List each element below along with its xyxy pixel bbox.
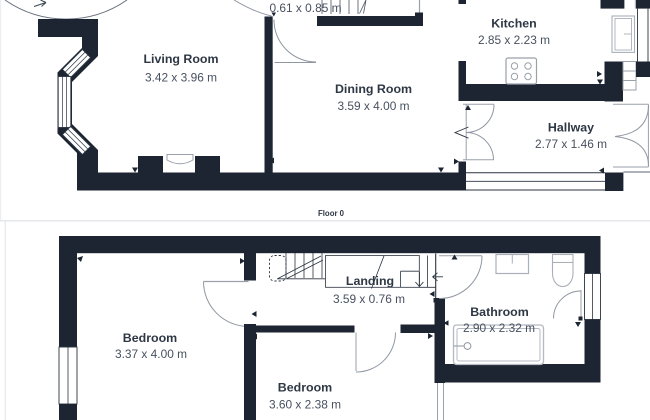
svg-text:3.37 x 4.00 m: 3.37 x 4.00 m: [115, 347, 187, 361]
svg-text:Bedroom: Bedroom: [278, 381, 332, 395]
svg-text:Hallway: Hallway: [548, 121, 594, 135]
svg-text:0.61 x 0.85 m: 0.61 x 0.85 m: [269, 1, 341, 15]
svg-text:Kitchen: Kitchen: [491, 17, 536, 31]
svg-text:2.77 x 1.46 m: 2.77 x 1.46 m: [535, 137, 607, 151]
svg-text:Bathroom: Bathroom: [470, 305, 529, 319]
svg-text:3.59 x 0.76 m: 3.59 x 0.76 m: [333, 292, 405, 306]
svg-text:3.59 x 4.00 m: 3.59 x 4.00 m: [337, 99, 409, 113]
svg-text:Landing: Landing: [346, 274, 394, 288]
svg-text:2.85 x 2.23 m: 2.85 x 2.23 m: [478, 33, 550, 47]
svg-text:Living Room: Living Room: [143, 52, 218, 66]
svg-text:Floor 0: Floor 0: [318, 209, 345, 218]
svg-text:Dining Room: Dining Room: [335, 82, 412, 96]
svg-text:3.60 x 2.38 m: 3.60 x 2.38 m: [269, 398, 341, 412]
svg-text:2.90 x 2.32 m: 2.90 x 2.32 m: [463, 321, 535, 335]
svg-text:Bedroom: Bedroom: [123, 331, 177, 345]
svg-text:3.42 x 3.96 m: 3.42 x 3.96 m: [145, 71, 217, 85]
